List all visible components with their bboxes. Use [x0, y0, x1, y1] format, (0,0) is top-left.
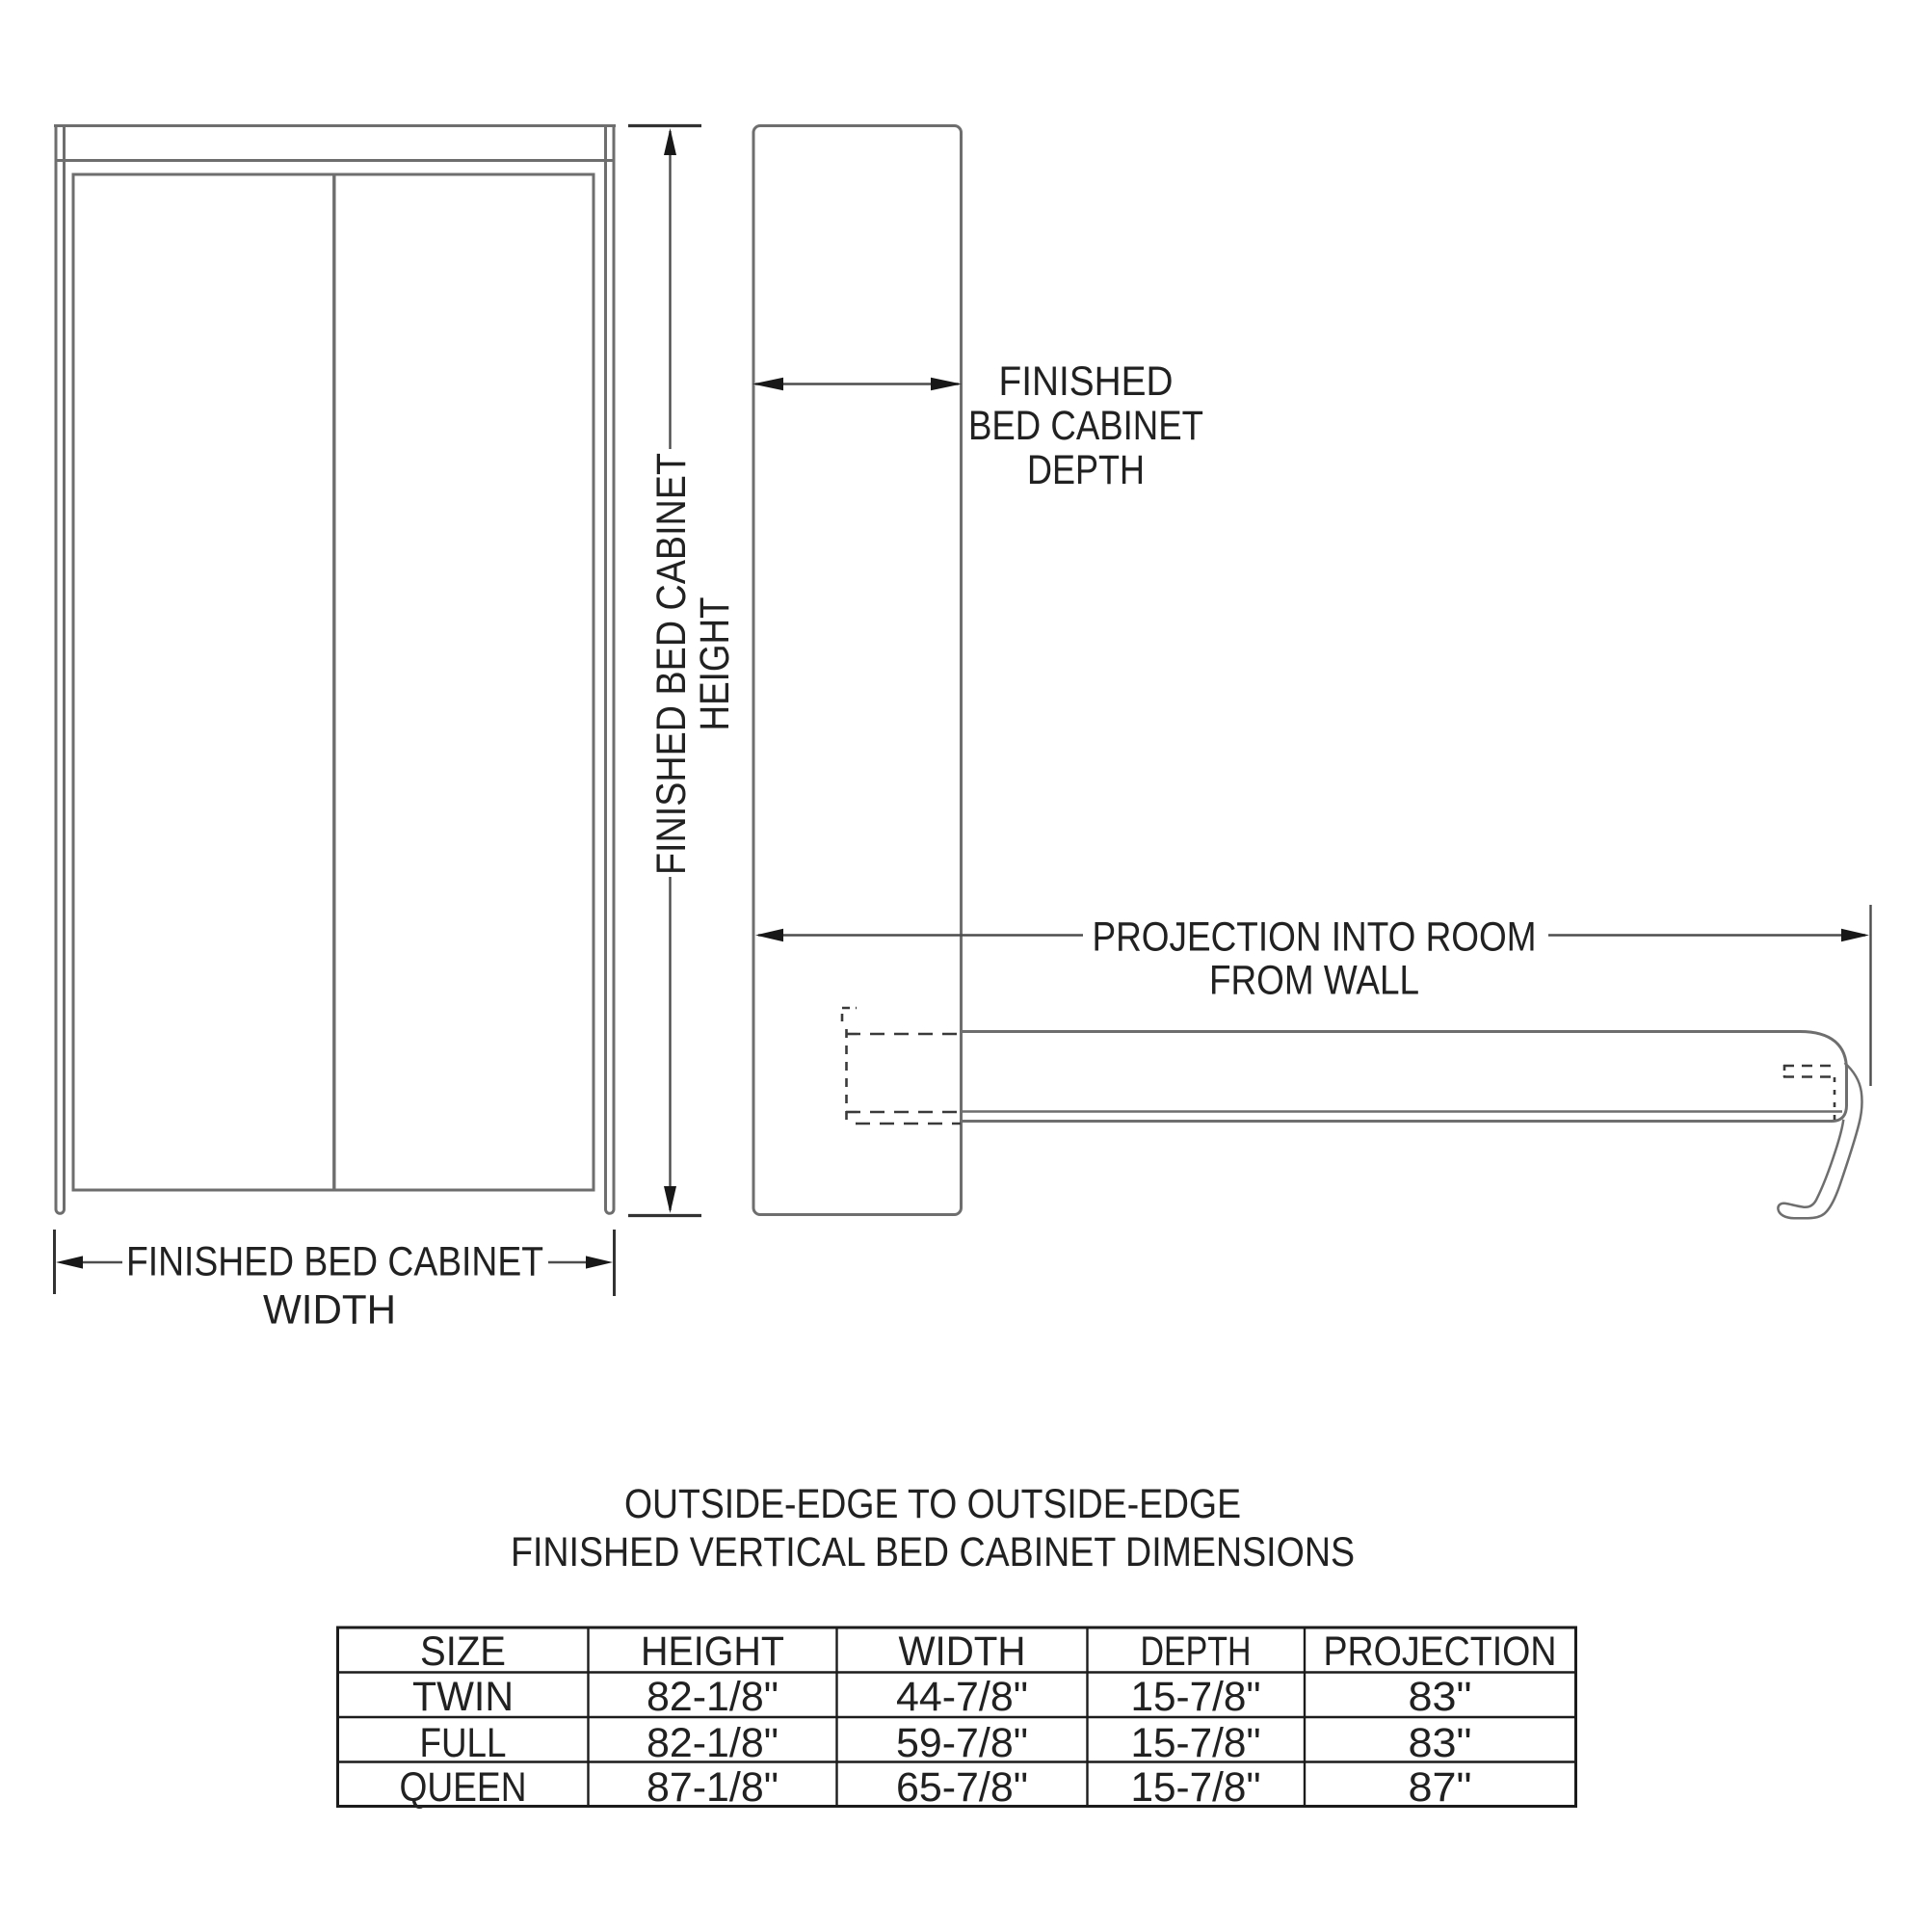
svg-text:PROJECTION INTO ROOM: PROJECTION INTO ROOM	[1093, 914, 1537, 961]
svg-text:15-7/8": 15-7/8"	[1131, 1764, 1261, 1811]
svg-text:DEPTH: DEPTH	[1027, 447, 1145, 493]
svg-text:15-7/8": 15-7/8"	[1131, 1674, 1261, 1720]
svg-text:83": 83"	[1409, 1674, 1472, 1720]
svg-text:QUEEN: QUEEN	[400, 1764, 527, 1811]
svg-text:DEPTH: DEPTH	[1141, 1628, 1252, 1675]
svg-text:59-7/8": 59-7/8"	[896, 1720, 1028, 1766]
svg-text:87": 87"	[1409, 1764, 1472, 1811]
svg-text:FINISHED: FINISHED	[999, 358, 1174, 405]
svg-text:FROM WALL: FROM WALL	[1209, 958, 1419, 1004]
svg-text:TWIN: TWIN	[412, 1674, 514, 1720]
svg-text:OUTSIDE-EDGE TO OUTSIDE-EDGE: OUTSIDE-EDGE TO OUTSIDE-EDGE	[624, 1481, 1241, 1527]
svg-text:BED CABINET: BED CABINET	[968, 403, 1203, 449]
svg-text:WIDTH: WIDTH	[263, 1287, 396, 1334]
svg-text:FULL: FULL	[420, 1720, 507, 1766]
svg-text:FINISHED BED CABINET: FINISHED BED CABINET	[126, 1239, 543, 1285]
svg-text:82-1/8": 82-1/8"	[647, 1720, 779, 1766]
svg-text:FINISHED VERTICAL BED CABINET: FINISHED VERTICAL BED CABINET DIMENSIONS	[511, 1529, 1355, 1575]
svg-text:SIZE: SIZE	[420, 1628, 506, 1675]
svg-text:PROJECTION: PROJECTION	[1324, 1628, 1557, 1675]
svg-text:WIDTH: WIDTH	[899, 1628, 1026, 1675]
svg-text:HEIGHT: HEIGHT	[692, 597, 738, 731]
svg-text:65-7/8": 65-7/8"	[896, 1764, 1028, 1811]
svg-text:82-1/8": 82-1/8"	[647, 1674, 779, 1720]
svg-text:87-1/8": 87-1/8"	[647, 1764, 779, 1811]
svg-text:HEIGHT: HEIGHT	[641, 1628, 784, 1675]
svg-text:FINISHED BED CABINET: FINISHED BED CABINET	[648, 453, 695, 875]
svg-text:44-7/8": 44-7/8"	[896, 1674, 1028, 1720]
svg-text:15-7/8": 15-7/8"	[1131, 1720, 1261, 1766]
svg-text:83": 83"	[1409, 1720, 1472, 1766]
